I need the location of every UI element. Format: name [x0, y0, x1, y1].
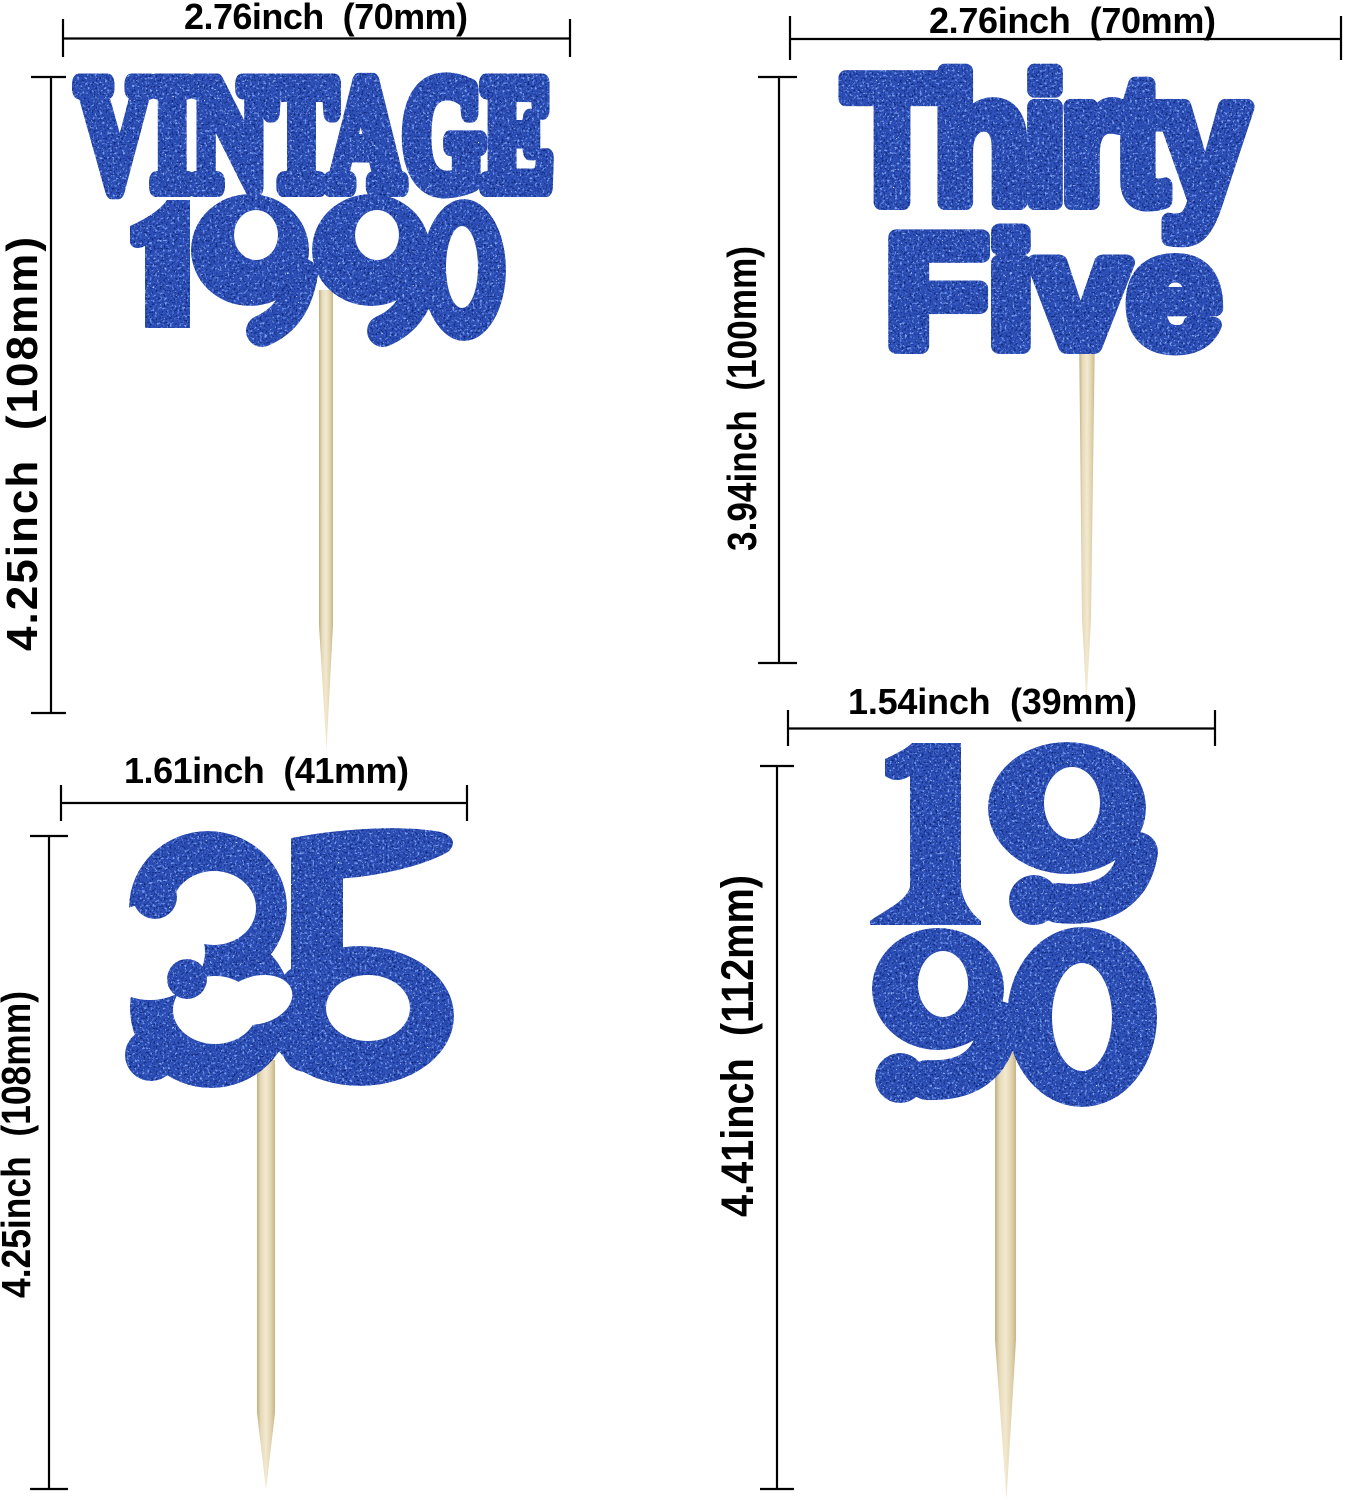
svg-text:4.41inch (112mm): 4.41inch (112mm) [712, 875, 763, 1217]
svg-text:4.25inch (108mm): 4.25inch (108mm) [0, 991, 39, 1298]
svg-text:1.54inch (39mm): 1.54inch (39mm) [848, 681, 1137, 722]
svg-text:1.61inch (41mm): 1.61inch (41mm) [124, 750, 409, 791]
svg-text:VINTAGE: VINTAGE [77, 46, 552, 221]
svg-text:2.76inch (70mm): 2.76inch (70mm) [929, 0, 1216, 41]
svg-text:Five: Five [885, 204, 1220, 380]
svg-text:2.76inch (70mm): 2.76inch (70mm) [184, 0, 468, 37]
svg-text:4.25inch (108mm): 4.25inch (108mm) [0, 237, 47, 651]
svg-text:3.94inch (100mm): 3.94inch (100mm) [719, 246, 765, 551]
